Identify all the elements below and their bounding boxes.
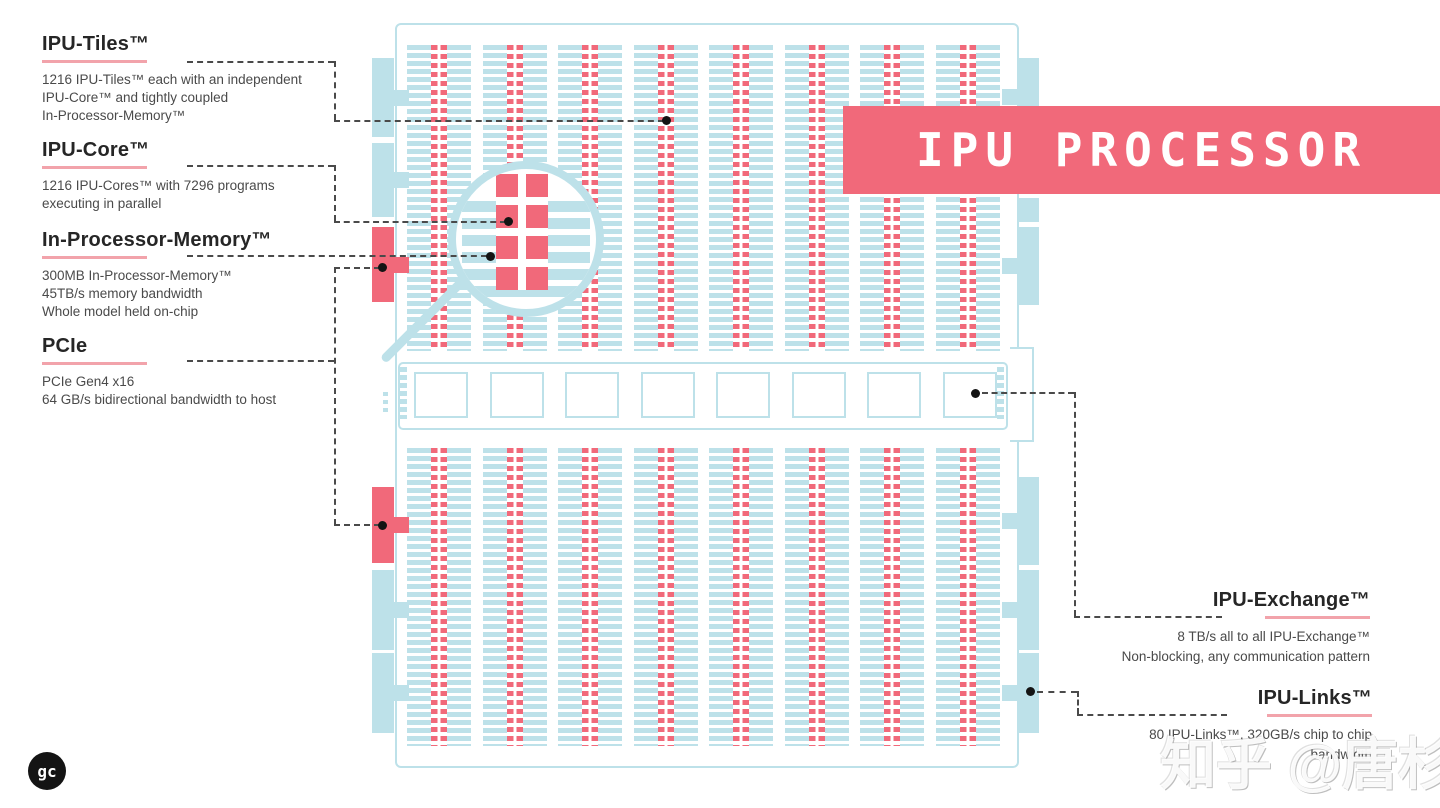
memory-column <box>809 45 825 351</box>
anchor-dot-exchange <box>971 389 980 398</box>
memory-column <box>960 448 976 746</box>
exchange-square <box>565 372 619 418</box>
title-underline <box>42 166 147 169</box>
anchor-dot-pcie-bottom <box>378 521 387 530</box>
chip-edge-tab <box>372 653 394 733</box>
exchange-square <box>490 372 544 418</box>
tile-bars-right <box>674 45 698 351</box>
tile-column-group <box>785 45 849 351</box>
chip-edge-tab <box>372 58 394 137</box>
anchor-dot-links <box>1026 687 1035 696</box>
tile-bars-right <box>598 45 622 351</box>
exchange-square <box>792 372 846 418</box>
chip-edge-tab-stub <box>394 172 409 188</box>
annotation-line: In-Processor-Memory™ <box>42 107 372 125</box>
tile-bars-right <box>900 45 924 351</box>
exchange-square <box>867 372 921 418</box>
chip-edge-tab-stub <box>1002 258 1017 274</box>
annotation-title: In-Processor-Memory™ <box>42 228 372 252</box>
title-underline <box>1265 616 1370 619</box>
tile-column-group <box>785 448 849 746</box>
slide: IPU PROCESSOR IPU-Tiles™ 1216 IPU-Tiles™… <box>0 0 1440 808</box>
annotation-line: 1216 IPU-Cores™ with 7296 programs <box>42 177 372 195</box>
tile-column-group <box>860 448 924 746</box>
annotation-line: 300MB In-Processor-Memory™ <box>42 267 372 285</box>
annotation-ipu-core: IPU-Core™ 1216 IPU-Cores™ with 7296 prog… <box>42 138 372 213</box>
tile-bars-right <box>825 448 849 746</box>
tile-column-group <box>634 45 698 351</box>
exchange-square <box>414 372 468 418</box>
title-underline <box>1267 714 1372 717</box>
title-banner: IPU PROCESSOR <box>843 106 1440 194</box>
chip-edge-tab-stub <box>1002 685 1017 701</box>
tile-column-group <box>936 45 1000 351</box>
pcie-connector-stub <box>394 257 409 273</box>
chip-edge-tab-stub <box>394 90 409 106</box>
memory-column <box>658 45 674 351</box>
annotation-line: Non-blocking, any communication pattern <box>1040 647 1370 667</box>
annotation-ipu-tiles: IPU-Tiles™ 1216 IPU-Tiles™ each with an … <box>42 32 372 125</box>
connector-exchange-h1 <box>982 392 1074 394</box>
tile-bars-left <box>860 45 884 351</box>
annotation-line: 45TB/s memory bandwidth <box>42 285 372 303</box>
title-underline <box>42 60 147 63</box>
chip-edge-tab <box>1017 198 1039 222</box>
exchange-pin-dots <box>383 392 388 414</box>
annotation-ipu-exchange: IPU-Exchange™ 8 TB/s all to all IPU-Exch… <box>1040 588 1370 667</box>
chip-edge-tab <box>1017 477 1039 565</box>
annotation-title: IPU-Core™ <box>42 138 372 162</box>
chip-edge-tab-stub <box>394 685 409 701</box>
chip-edge-tab <box>372 143 394 217</box>
chip-edge-tab-stub <box>1002 89 1017 105</box>
exchange-square <box>641 372 695 418</box>
tile-bars-left <box>558 448 582 746</box>
tile-bars-left <box>860 448 884 746</box>
annotation-title: PCIe <box>42 334 372 358</box>
memory-column <box>809 448 825 746</box>
magnified-core-squares <box>496 174 548 290</box>
annotation-line: PCIe Gen4 x16 <box>42 373 372 391</box>
tile-bars-left <box>936 448 960 746</box>
annotation-line: 1216 IPU-Tiles™ each with an independent <box>42 71 372 89</box>
annotation-line: 64 GB/s bidirectional bandwidth to host <box>42 391 372 409</box>
tile-bars-right <box>976 45 1000 351</box>
anchor-dot-memory <box>486 252 495 261</box>
chip-edge-tab-stub <box>1002 513 1017 529</box>
exchange-comb-left <box>400 367 407 419</box>
anchor-dot-pcie-top <box>378 263 387 272</box>
chip-edge-tab <box>372 570 394 650</box>
tile-bars-right <box>674 448 698 746</box>
pcie-connector-stub <box>394 517 409 533</box>
tile-column-group <box>407 448 471 746</box>
tile-column-group <box>709 448 773 746</box>
memory-column <box>884 45 900 351</box>
tile-column-group <box>936 448 1000 746</box>
tile-column-group <box>483 448 547 746</box>
tile-bars-right <box>598 448 622 746</box>
annotation-title: IPU-Exchange™ <box>1040 588 1370 612</box>
tile-bars-left <box>785 448 809 746</box>
tile-bars-left <box>483 448 507 746</box>
chip-edge-tab <box>1017 227 1039 305</box>
watermark: 知乎 @唐杉 <box>1160 720 1440 801</box>
memory-column <box>733 45 749 351</box>
tile-bars-right <box>749 45 773 351</box>
memory-column <box>884 448 900 746</box>
title-underline <box>42 256 147 259</box>
memory-column <box>431 448 447 746</box>
connector-ipu-core-h2 <box>334 221 506 223</box>
magnifier-circle <box>448 161 604 317</box>
memory-column <box>658 448 674 746</box>
tile-bars-left <box>634 45 658 351</box>
graphcore-logo-text: gc <box>37 762 56 781</box>
tile-bars-right <box>825 45 849 351</box>
tile-bars-right <box>447 448 471 746</box>
tile-bars-left <box>785 45 809 351</box>
tile-column-group <box>860 45 924 351</box>
chip-edge-tab <box>1017 570 1039 650</box>
tile-bars-left <box>634 448 658 746</box>
annotation-line: executing in parallel <box>42 195 372 213</box>
tile-bars-right <box>749 448 773 746</box>
chip-edge-tab-stub <box>1002 602 1017 618</box>
tile-bars-left <box>407 448 431 746</box>
memory-column <box>960 45 976 351</box>
annotation-line: IPU-Core™ and tightly coupled <box>42 89 372 107</box>
memory-column <box>582 448 598 746</box>
annotation-title: IPU-Links™ <box>1042 686 1372 710</box>
tile-column-group <box>634 448 698 746</box>
memory-column <box>733 448 749 746</box>
exchange-square <box>943 372 997 418</box>
connector-exchange-v <box>1074 392 1076 616</box>
page-title: IPU PROCESSOR <box>916 123 1367 177</box>
annotation-line: Whole model held on-chip <box>42 303 372 321</box>
annotation-in-processor-memory: In-Processor-Memory™ 300MB In-Processor-… <box>42 228 372 321</box>
connector-ipu-tiles-h2 <box>334 120 664 122</box>
annotation-line: 8 TB/s all to all IPU-Exchange™ <box>1040 627 1370 647</box>
title-underline <box>42 362 147 365</box>
annotation-pcie: PCIe PCIe Gen4 x16 64 GB/s bidirectional… <box>42 334 372 409</box>
tile-bars-left <box>936 45 960 351</box>
tile-column-group <box>558 448 622 746</box>
tile-bars-left <box>407 45 431 351</box>
chip-edge-exchange-bulge <box>1010 347 1034 442</box>
memory-column <box>507 448 523 746</box>
tile-column-group <box>709 45 773 351</box>
graphcore-logo: gc <box>28 752 66 790</box>
annotation-title: IPU-Tiles™ <box>42 32 372 56</box>
exchange-square <box>716 372 770 418</box>
tile-bars-left <box>709 45 733 351</box>
chip-edge-tab-stub <box>394 602 409 618</box>
tile-bars-left <box>709 448 733 746</box>
connector-pcie-stub-bottom <box>334 524 380 526</box>
anchor-dot-ipu-tiles <box>662 116 671 125</box>
anchor-dot-ipu-core <box>504 217 513 226</box>
tile-bars-right <box>900 448 924 746</box>
tile-bars-right <box>523 448 547 746</box>
tile-bars-right <box>976 448 1000 746</box>
